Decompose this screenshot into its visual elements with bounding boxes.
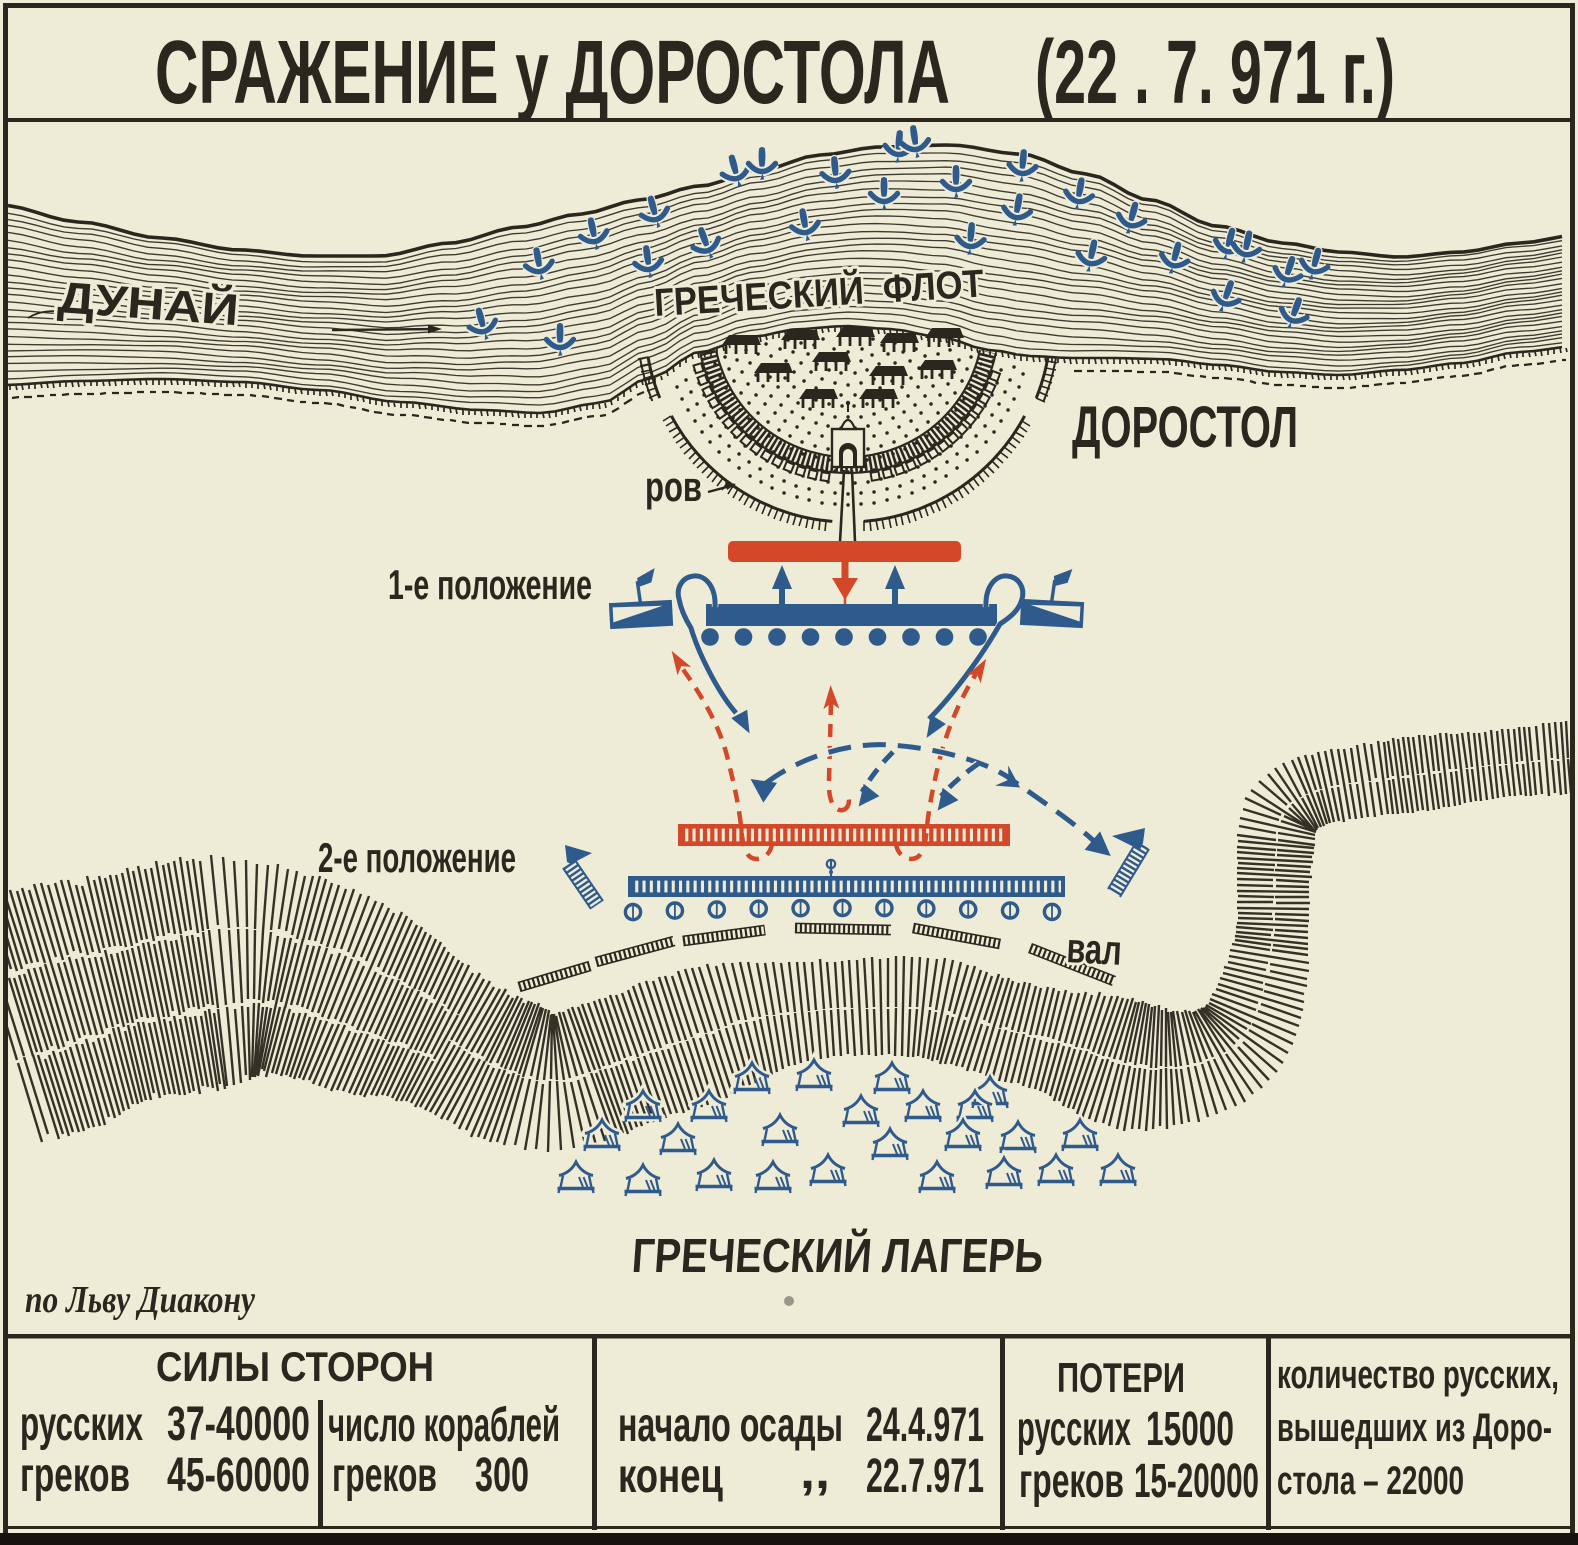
svg-text:22.7.971: 22.7.971 [866, 1450, 984, 1503]
svg-text:число кораблей: число кораблей [328, 1399, 560, 1452]
svg-text:греков: греков [1019, 1455, 1124, 1508]
svg-text:ГРЕЧЕСКИЙ ЛАГЕРЬ: ГРЕЧЕСКИЙ ЛАГЕРЬ [630, 1228, 1045, 1283]
svg-text:15-20000: 15-20000 [1134, 1455, 1259, 1508]
svg-text:вышедших из Доро-: вышедших из Доро- [1277, 1406, 1552, 1450]
svg-text:вал: вал [1066, 924, 1123, 974]
svg-text:ПОТЕРИ: ПОТЕРИ [1057, 1354, 1185, 1401]
svg-text:СРАЖЕНИЕ у ДОРОСТОЛА: СРАЖЕНИЕ у ДОРОСТОЛА [155, 23, 950, 123]
svg-text:греков: греков [20, 1449, 130, 1502]
svg-text:(22 . 7. 971 г.): (22 . 7. 971 г.) [1035, 23, 1395, 123]
svg-text:стола – 22000: стола – 22000 [1277, 1459, 1464, 1503]
svg-text:15000: 15000 [1146, 1403, 1234, 1456]
svg-text:ДОРОСТОЛ: ДОРОСТОЛ [1072, 395, 1298, 460]
svg-text:СИЛЫ СТОРОН: СИЛЫ СТОРОН [156, 1343, 434, 1390]
svg-text:24.4.971: 24.4.971 [866, 1399, 984, 1452]
svg-text:русских: русских [20, 1398, 143, 1451]
svg-text:2-е положение: 2-е положение [318, 834, 516, 881]
svg-text:количество русских,: количество русских, [1277, 1353, 1559, 1397]
svg-text:1-е положение: 1-е положение [388, 561, 592, 608]
svg-text:,,: ,, [800, 1446, 830, 1499]
svg-text:37-40000: 37-40000 [167, 1398, 310, 1451]
svg-text:300: 300 [475, 1449, 529, 1502]
svg-text:русских: русских [1017, 1403, 1131, 1456]
svg-text:греков: греков [332, 1449, 437, 1502]
svg-text:45-60000: 45-60000 [167, 1449, 310, 1502]
svg-text:по Льву Диакону: по Льву Диакону [25, 1279, 255, 1321]
svg-text:ров: ров [645, 463, 702, 510]
svg-text:начало осады: начало осады [618, 1399, 843, 1452]
svg-text:конец: конец [618, 1450, 723, 1503]
